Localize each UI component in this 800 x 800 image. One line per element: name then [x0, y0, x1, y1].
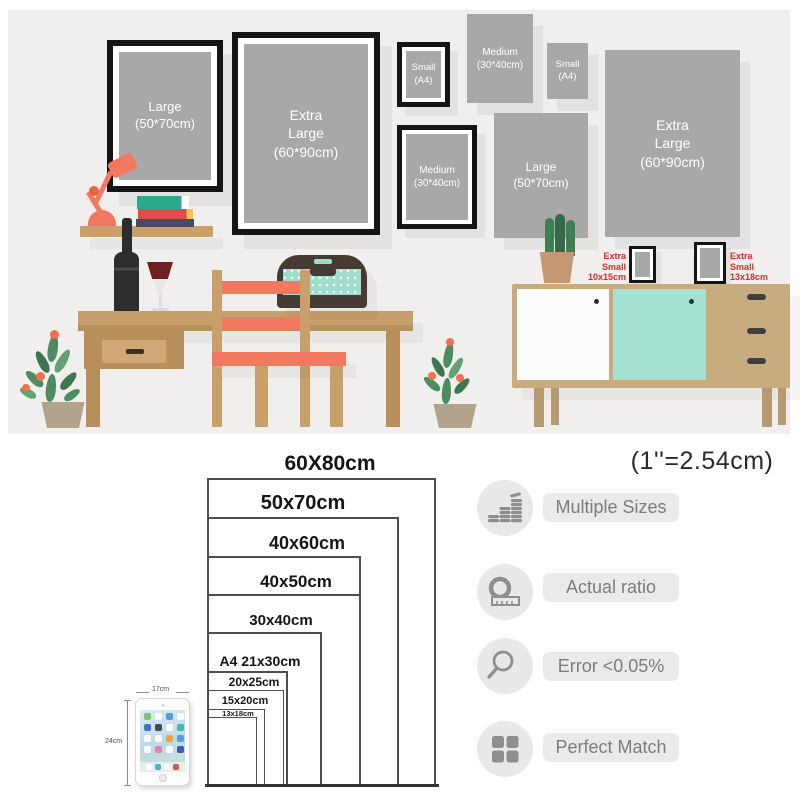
- size-label-40x50: 40x50cm: [260, 572, 332, 592]
- chair-leg: [330, 366, 343, 427]
- tablet-for-scale: [135, 698, 190, 786]
- poster-label: Medium (30*40cm): [406, 134, 468, 220]
- product-infographic: Large (50*70cm) Extra Large (60*90cm) Sm…: [0, 0, 800, 800]
- size-dims: (30*40cm): [414, 177, 460, 190]
- size-label-13x18: 13x18cm: [222, 709, 254, 718]
- size-name: Medium: [419, 164, 455, 177]
- sideboard: [512, 284, 790, 388]
- wall-poster-small: Small (A4): [547, 43, 588, 99]
- size-name: Medium: [482, 46, 518, 59]
- chair-slat: [222, 317, 300, 330]
- handbag-handle-hole: [314, 259, 332, 264]
- poster-label: Small (A4): [406, 51, 441, 98]
- lamp-joint: [89, 186, 99, 196]
- xs-size-label-13x18: Extra Small 13x18cm: [730, 251, 778, 283]
- book-teal: [137, 196, 189, 209]
- feature-label: Perfect Match: [555, 737, 666, 758]
- tablet-height-label: 24cm: [105, 738, 122, 745]
- cactus-lobe: [545, 218, 554, 256]
- feature-pill-perfect-match: Perfect Match: [543, 733, 679, 762]
- cactus-lobe: [566, 220, 575, 256]
- desk-leg: [386, 331, 400, 427]
- height-ruler-tick: [124, 785, 131, 786]
- xs-size-label-10x15: Extra Small 10x15cm: [582, 251, 626, 283]
- height-ruler-tick: [124, 700, 131, 701]
- chair-back-post: [300, 270, 310, 427]
- height-ruler-line: [127, 700, 128, 786]
- feature-icon-circle: [477, 638, 533, 694]
- feature-pill-error: Error <0.05%: [543, 652, 679, 681]
- door-knob: [594, 299, 599, 304]
- feature-label: Actual ratio: [566, 577, 656, 598]
- wall-poster-extra-large: Extra Large (60*90cm): [605, 50, 740, 237]
- tablet-width-label: 17cm: [152, 686, 169, 693]
- cactus-pot: [537, 252, 577, 283]
- room-scene: Large (50*70cm) Extra Large (60*90cm) Sm…: [8, 10, 790, 434]
- drawer-handle: [747, 328, 766, 334]
- size-label-20x25: 20x25cm: [229, 675, 280, 689]
- size-dims: (A4): [559, 71, 577, 83]
- width-ruler-dash: [176, 692, 189, 693]
- book-red: [138, 209, 193, 219]
- size-label-30x40: 30x40cm: [249, 612, 312, 629]
- wine: [147, 262, 173, 279]
- feature-pill-multiple-sizes: Multiple Sizes: [543, 493, 679, 522]
- size-label-40x60: 40x60cm: [269, 533, 345, 554]
- size-comparison-diagram: (1''=2.54cm) 60X80cm 50x70cm 40x60cm 40x…: [0, 440, 800, 800]
- size-dims: (50*70cm): [513, 176, 568, 192]
- wall-frame-extra-large: Extra Large (60*90cm): [232, 32, 380, 235]
- drawer-handle: [747, 294, 766, 300]
- wall-frame-medium: Medium (30*40cm): [397, 125, 477, 229]
- wine-bottle: [114, 252, 139, 312]
- potted-plant-left: [18, 328, 98, 428]
- feature-icon-circle: [477, 721, 533, 777]
- poster-label: Extra Large (60*90cm): [244, 44, 368, 223]
- chair-slat: [222, 281, 300, 294]
- wall-poster-large: Large (50*70cm): [494, 113, 588, 238]
- drawer-handle: [126, 349, 144, 354]
- tablet-screen: [140, 710, 185, 772]
- feature-pill-actual-ratio: Actual ratio: [543, 573, 679, 602]
- chair-leg: [255, 366, 268, 427]
- size-name: Small: [412, 62, 436, 74]
- tablet-app-grid: [140, 710, 185, 756]
- cactus-lobe: [555, 214, 565, 256]
- size-name: Large: [526, 160, 557, 176]
- handbag-clasp: [310, 267, 336, 276]
- size-name: Small: [556, 59, 580, 71]
- size-label-a4: A4 21x30cm: [220, 653, 301, 669]
- inch-conversion-note: (1''=2.54cm): [612, 447, 792, 476]
- size-label-15x20: 15x20cm: [222, 695, 269, 707]
- diagram-baseline: [205, 784, 439, 787]
- plant-pot: [430, 404, 480, 428]
- drawer-handle: [747, 358, 766, 364]
- tablet-home-button: [159, 774, 167, 782]
- door-knob: [689, 299, 694, 304]
- sideboard-leg: [534, 388, 544, 427]
- size-name: Large: [655, 134, 691, 152]
- feature-icon-circle: [477, 564, 533, 620]
- size-label-50x70: 50x70cm: [261, 492, 346, 515]
- tape-measure-icon: [485, 572, 525, 612]
- chair-back-post: [212, 270, 222, 427]
- wine-glass-stem: [159, 294, 162, 309]
- book-navy: [136, 219, 194, 227]
- grid-icon: [485, 729, 525, 769]
- width-ruler-dash: [136, 692, 149, 693]
- sideboard-leg: [551, 388, 559, 425]
- sideboard-leg: [778, 388, 786, 425]
- sideboard-leg: [762, 388, 772, 427]
- tabletop-frame-13x18: [694, 242, 726, 284]
- feature-label: Multiple Sizes: [555, 497, 666, 518]
- feature-icon-circle: [477, 480, 533, 536]
- size-dims: (30*40cm): [477, 59, 523, 72]
- size-dims: (60*90cm): [640, 153, 705, 171]
- lamp-base: [88, 210, 116, 226]
- chair-seat: [212, 352, 346, 366]
- feature-label: Error <0.05%: [558, 656, 665, 677]
- size-rect-13x18: [207, 717, 257, 786]
- wall-shelf: [80, 226, 213, 237]
- tabletop-frame-10x15: [629, 246, 656, 283]
- size-dims: (50*70cm): [135, 116, 195, 133]
- size-dims: (60*90cm): [274, 143, 339, 161]
- coins-icon: [485, 488, 525, 528]
- plant-pot: [38, 402, 88, 428]
- potted-plant-right: [416, 336, 488, 428]
- size-dims: (A4): [415, 75, 433, 87]
- wall-poster-medium: Medium (30*40cm): [467, 14, 533, 103]
- size-label-60x80: 60X80cm: [284, 452, 375, 476]
- size-name: Large: [288, 124, 324, 142]
- tablet-dock: [140, 762, 185, 772]
- wall-frame-small: Small (A4): [397, 42, 450, 107]
- tablet-camera-dot: [161, 704, 164, 707]
- size-name: Extra: [290, 106, 323, 124]
- size-name: Extra: [656, 116, 689, 134]
- magnifier-icon: [485, 646, 525, 686]
- size-name: Large: [148, 99, 181, 116]
